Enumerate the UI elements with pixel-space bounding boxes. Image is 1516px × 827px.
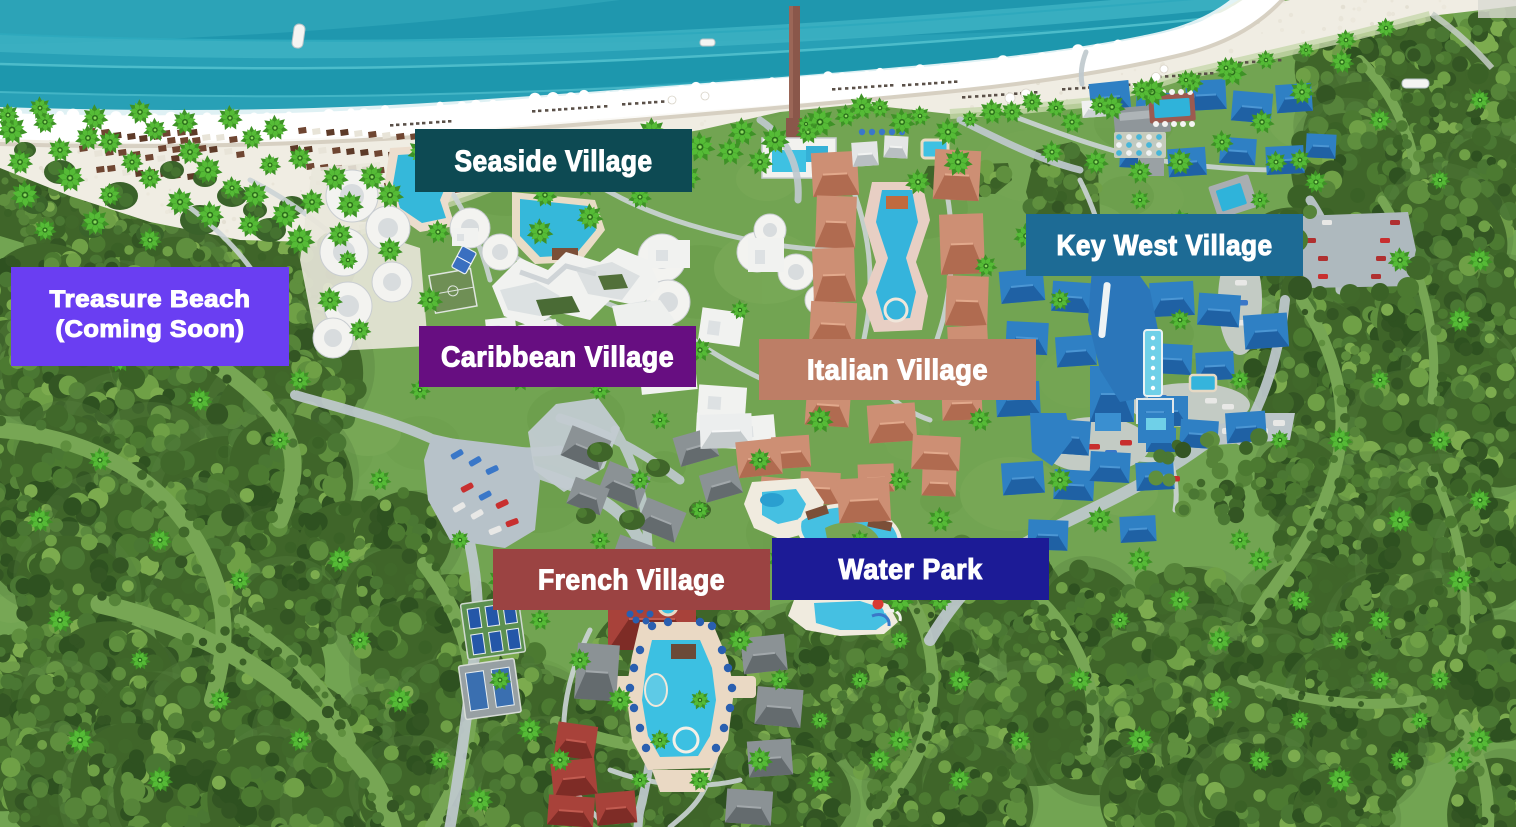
svg-text:Treasure Beach: Treasure Beach xyxy=(50,286,251,313)
svg-text:Italian Village: Italian Village xyxy=(807,355,988,387)
svg-text:Water Park: Water Park xyxy=(839,554,983,586)
svg-text:(Coming Soon): (Coming Soon) xyxy=(56,316,245,343)
svg-text:Key West Village: Key West Village xyxy=(1057,230,1273,262)
svg-text:Seaside Village: Seaside Village xyxy=(455,145,653,178)
svg-text:Caribbean Village: Caribbean Village xyxy=(441,342,674,374)
svg-text:French Village: French Village xyxy=(538,565,725,597)
